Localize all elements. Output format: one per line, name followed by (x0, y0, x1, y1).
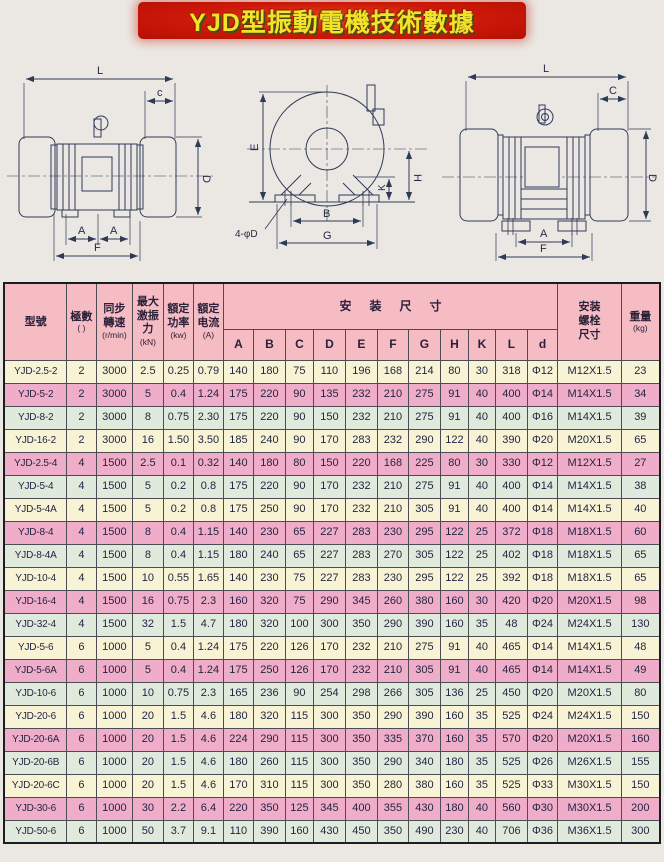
value-cell: 370 (408, 728, 440, 751)
value-cell: 6 (66, 705, 96, 728)
value-cell: 390 (253, 820, 285, 843)
value-cell: 250 (253, 659, 285, 682)
value-cell: 260 (377, 590, 408, 613)
value-cell: 180 (223, 544, 253, 567)
value-cell: 65 (622, 567, 660, 590)
value-cell: 2.2 (163, 797, 193, 820)
model-cell: YJD-5-4 (4, 475, 66, 498)
table-row: YJD-10-661000100.752.3165236902542982663… (4, 682, 659, 705)
table-body: YJD-2.5-2230002.50.250.79140180751101961… (4, 360, 659, 843)
value-cell: 210 (377, 498, 408, 521)
col-header-dim-d: d (527, 329, 557, 360)
value-cell: M14X1.5 (558, 383, 622, 406)
value-cell: 20 (132, 774, 163, 797)
value-cell: 30 (468, 590, 495, 613)
value-cell: 27 (622, 452, 660, 475)
value-cell: 40 (468, 820, 495, 843)
dim-label-E: E (249, 144, 261, 151)
value-cell: 91 (440, 383, 468, 406)
value-cell: M18X1.5 (558, 544, 622, 567)
value-cell: 5 (132, 659, 163, 682)
value-cell: 40 (468, 383, 495, 406)
table-row: YJD-20-6A61000201.54.6224290115300350335… (4, 728, 659, 751)
col-header-dim-D: D (313, 329, 345, 360)
dim-label-C: C (609, 85, 617, 97)
value-cell: 0.8 (193, 475, 223, 498)
value-cell: 220 (253, 383, 285, 406)
value-cell: 525 (495, 751, 527, 774)
col-header-model: 型號 (4, 283, 66, 360)
value-cell: 110 (313, 360, 345, 383)
value-cell: 135 (313, 383, 345, 406)
value-cell: 400 (345, 797, 377, 820)
value-cell: 10 (132, 567, 163, 590)
value-cell: 126 (285, 636, 313, 659)
value-cell: 100 (285, 613, 313, 636)
value-cell: 34 (622, 383, 660, 406)
value-cell: 80 (440, 452, 468, 475)
table-row: YJD-8-44150080.41.1514023065227283230295… (4, 521, 659, 544)
value-cell: 48 (622, 636, 660, 659)
value-cell: 254 (313, 682, 345, 705)
value-cell: 91 (440, 406, 468, 429)
value-cell: 4.7 (193, 613, 223, 636)
table-row: YJD-5-22300050.41.2417522090135232210275… (4, 383, 659, 406)
value-cell: 38 (622, 475, 660, 498)
value-cell: 25 (468, 544, 495, 567)
value-cell: 232 (345, 406, 377, 429)
value-cell: 140 (223, 360, 253, 383)
value-cell: 6 (66, 797, 96, 820)
value-cell: 210 (377, 659, 408, 682)
table-row: YJD-10-441500100.551.6514023075227283230… (4, 567, 659, 590)
dim-label-L: L (97, 65, 103, 77)
value-cell: 40 (468, 797, 495, 820)
value-cell: 115 (285, 774, 313, 797)
value-cell: M14X1.5 (558, 659, 622, 682)
value-cell: M24X1.5 (558, 705, 622, 728)
value-cell: 400 (495, 475, 527, 498)
value-cell: 4.6 (193, 705, 223, 728)
value-cell: 1000 (96, 682, 132, 705)
col-header-dim-A: A (223, 329, 253, 360)
col-header-speed: 同步轉速(r/min) (96, 283, 132, 360)
value-cell: Φ18 (527, 544, 557, 567)
dim-label-L: L (543, 63, 549, 75)
value-cell: 305 (408, 498, 440, 521)
value-cell: 160 (440, 728, 468, 751)
value-cell: 1000 (96, 705, 132, 728)
value-cell: 10 (132, 682, 163, 705)
spec-table: 型號 極數( ) 同步轉速(r/min) 最大激振力(kN) 額定功率(kw) … (3, 282, 660, 844)
value-cell: Φ16 (527, 406, 557, 429)
value-cell: 4 (66, 498, 96, 521)
value-cell: 170 (313, 659, 345, 682)
value-cell: 402 (495, 544, 527, 567)
value-cell: 230 (377, 567, 408, 590)
value-cell: 3000 (96, 429, 132, 452)
value-cell: 136 (440, 682, 468, 705)
value-cell: 465 (495, 636, 527, 659)
value-cell: 5 (132, 475, 163, 498)
value-cell: Φ12 (527, 360, 557, 383)
value-cell: 160 (622, 728, 660, 751)
value-cell: 1.24 (193, 636, 223, 659)
value-cell: 170 (313, 636, 345, 659)
value-cell: 266 (377, 682, 408, 705)
table-row: YJD-8-4A4150080.41.151802406522728327030… (4, 544, 659, 567)
table-row: YJD-30-661000302.26.42203501253454003554… (4, 797, 659, 820)
value-cell: 1.5 (163, 774, 193, 797)
value-cell: 170 (313, 475, 345, 498)
value-cell: 275 (408, 383, 440, 406)
dimension-diagrams: L c D A A F (0, 49, 664, 275)
value-cell: 30 (468, 452, 495, 475)
model-cell: YJD-32-4 (4, 613, 66, 636)
value-cell: 168 (377, 452, 408, 475)
value-cell: 300 (622, 820, 660, 843)
value-cell: 210 (377, 383, 408, 406)
value-cell: 420 (495, 590, 527, 613)
value-cell: Φ20 (527, 728, 557, 751)
value-cell: 110 (223, 820, 253, 843)
col-header-dim-G: G (408, 329, 440, 360)
value-cell: 232 (377, 429, 408, 452)
value-cell: 3.50 (193, 429, 223, 452)
model-cell: YJD-10-4 (4, 567, 66, 590)
value-cell: 283 (345, 544, 377, 567)
value-cell: 1000 (96, 797, 132, 820)
value-cell: 4 (66, 521, 96, 544)
value-cell: 180 (440, 751, 468, 774)
value-cell: 355 (377, 797, 408, 820)
value-cell: 65 (622, 429, 660, 452)
datasheet-page: YJD型振動電機技術數據 (0, 2, 664, 862)
value-cell: Φ20 (527, 682, 557, 705)
value-cell: 5 (132, 636, 163, 659)
value-cell: 5 (132, 383, 163, 406)
value-cell: Φ24 (527, 705, 557, 728)
value-cell: M14X1.5 (558, 498, 622, 521)
value-cell: M14X1.5 (558, 475, 622, 498)
value-cell: 1.5 (163, 751, 193, 774)
value-cell: 1.5 (163, 728, 193, 751)
model-cell: YJD-5-6 (4, 636, 66, 659)
value-cell: 1500 (96, 475, 132, 498)
value-cell: 2 (66, 383, 96, 406)
table-row: YJD-20-6C61000201.54.6170310115300350280… (4, 774, 659, 797)
col-header-dim-B: B (253, 329, 285, 360)
value-cell: M26X1.5 (558, 751, 622, 774)
value-cell: 0.55 (163, 567, 193, 590)
value-cell: 230 (253, 521, 285, 544)
value-cell: Φ14 (527, 498, 557, 521)
value-cell: 150 (622, 705, 660, 728)
value-cell: 6 (66, 682, 96, 705)
value-cell: 122 (440, 544, 468, 567)
value-cell: 4.6 (193, 751, 223, 774)
value-cell: 232 (345, 498, 377, 521)
value-cell: 175 (223, 383, 253, 406)
value-cell: 8 (132, 544, 163, 567)
value-cell: 345 (345, 590, 377, 613)
dim-label-A: A (540, 228, 548, 240)
value-cell: 0.75 (163, 406, 193, 429)
value-cell: 35 (468, 774, 495, 797)
model-cell: YJD-50-6 (4, 820, 66, 843)
value-cell: 300 (313, 613, 345, 636)
value-cell: 20 (132, 751, 163, 774)
value-cell: 400 (495, 498, 527, 521)
value-cell: 90 (285, 383, 313, 406)
value-cell: 1.5 (163, 705, 193, 728)
value-cell: 115 (285, 728, 313, 751)
value-cell: 350 (345, 728, 377, 751)
value-cell: 350 (377, 820, 408, 843)
dim-label-K: K (377, 184, 388, 191)
value-cell: 224 (223, 728, 253, 751)
value-cell: 3000 (96, 406, 132, 429)
value-cell: 2 (66, 429, 96, 452)
value-cell: 335 (377, 728, 408, 751)
model-cell: YJD-2.5-4 (4, 452, 66, 475)
table-row: YJD-20-6B61000201.54.6180260115300350290… (4, 751, 659, 774)
value-cell: 275 (408, 636, 440, 659)
value-cell: 155 (622, 751, 660, 774)
value-cell: 0.2 (163, 498, 193, 521)
col-header-force: 最大激振力(kN) (132, 283, 163, 360)
value-cell: Φ14 (527, 383, 557, 406)
value-cell: 48 (495, 613, 527, 636)
value-cell: 2.5 (132, 452, 163, 475)
value-cell: 4 (66, 590, 96, 613)
value-cell: 380 (408, 774, 440, 797)
value-cell: 318 (495, 360, 527, 383)
value-cell: 160 (223, 590, 253, 613)
value-cell: 170 (313, 429, 345, 452)
value-cell: 6 (66, 728, 96, 751)
model-cell: YJD-30-6 (4, 797, 66, 820)
value-cell: 392 (495, 567, 527, 590)
dim-label-D: D (646, 174, 658, 182)
value-cell: 525 (495, 705, 527, 728)
value-cell: 60 (622, 521, 660, 544)
value-cell: 0.4 (163, 521, 193, 544)
value-cell: 240 (253, 544, 285, 567)
value-cell: 175 (223, 406, 253, 429)
value-cell: 175 (223, 475, 253, 498)
value-cell: 305 (408, 682, 440, 705)
value-cell: 290 (253, 728, 285, 751)
value-cell: 40 (468, 429, 495, 452)
value-cell: 227 (313, 567, 345, 590)
model-cell: YJD-2.5-2 (4, 360, 66, 383)
value-cell: 300 (313, 774, 345, 797)
value-cell: 450 (345, 820, 377, 843)
value-cell: 20 (132, 705, 163, 728)
value-cell: 180 (440, 797, 468, 820)
value-cell: 0.8 (193, 498, 223, 521)
value-cell: 4 (66, 544, 96, 567)
col-header-power: 額定功率(kw) (163, 283, 193, 360)
value-cell: 115 (285, 751, 313, 774)
col-group-install-dimensions: 安装尺寸 (223, 283, 557, 329)
value-cell: 283 (345, 521, 377, 544)
value-cell: 390 (408, 613, 440, 636)
value-cell: 1500 (96, 544, 132, 567)
model-cell: YJD-16-4 (4, 590, 66, 613)
value-cell: 290 (408, 429, 440, 452)
value-cell: 210 (377, 475, 408, 498)
value-cell: 0.4 (163, 383, 193, 406)
value-cell: 525 (495, 774, 527, 797)
value-cell: 32 (132, 613, 163, 636)
value-cell: 4 (66, 613, 96, 636)
model-cell: YJD-8-4 (4, 521, 66, 544)
value-cell: 65 (622, 544, 660, 567)
value-cell: 1000 (96, 728, 132, 751)
value-cell: 430 (313, 820, 345, 843)
value-cell: 295 (408, 567, 440, 590)
value-cell: 232 (345, 636, 377, 659)
value-cell: Φ12 (527, 452, 557, 475)
col-header-dim-H: H (440, 329, 468, 360)
value-cell: 6 (66, 820, 96, 843)
value-cell: M14X1.5 (558, 406, 622, 429)
value-cell: 150 (313, 452, 345, 475)
value-cell: 91 (440, 659, 468, 682)
value-cell: 185 (223, 429, 253, 452)
value-cell: 1000 (96, 774, 132, 797)
model-cell: YJD-10-6 (4, 682, 66, 705)
value-cell: M18X1.5 (558, 567, 622, 590)
value-cell: M20X1.5 (558, 429, 622, 452)
value-cell: 210 (377, 636, 408, 659)
dim-label-H: H (411, 174, 423, 182)
table-row: YJD-8-22300080.752.301752209015023221027… (4, 406, 659, 429)
value-cell: 305 (408, 544, 440, 567)
value-cell: 25 (468, 521, 495, 544)
value-cell: 3.7 (163, 820, 193, 843)
value-cell: 227 (313, 544, 345, 567)
value-cell: 16 (132, 429, 163, 452)
value-cell: 490 (408, 820, 440, 843)
value-cell: 300 (313, 705, 345, 728)
value-cell: 345 (313, 797, 345, 820)
value-cell: 6 (66, 751, 96, 774)
value-cell: 40 (468, 475, 495, 498)
table-header: 型號 極數( ) 同步轉速(r/min) 最大激振力(kN) 額定功率(kw) … (4, 283, 659, 360)
value-cell: 2.30 (193, 406, 223, 429)
value-cell: 350 (345, 751, 377, 774)
value-cell: 2.3 (193, 590, 223, 613)
value-cell: 230 (253, 567, 285, 590)
value-cell: 90 (285, 429, 313, 452)
value-cell: 275 (408, 406, 440, 429)
value-cell: 0.75 (163, 682, 193, 705)
table-row: YJD-5-44150050.20.8175220901702322102759… (4, 475, 659, 498)
value-cell: 4.6 (193, 728, 223, 751)
value-cell: Φ20 (527, 590, 557, 613)
value-cell: 150 (313, 406, 345, 429)
value-cell: 220 (253, 475, 285, 498)
col-header-dim-K: K (468, 329, 495, 360)
value-cell: 560 (495, 797, 527, 820)
value-cell: Φ26 (527, 751, 557, 774)
value-cell: M20X1.5 (558, 590, 622, 613)
value-cell: 0.79 (193, 360, 223, 383)
value-cell: M20X1.5 (558, 682, 622, 705)
value-cell: 0.4 (163, 636, 193, 659)
value-cell: 4 (66, 567, 96, 590)
value-cell: 430 (408, 797, 440, 820)
value-cell: 23 (622, 360, 660, 383)
value-cell: 90 (285, 406, 313, 429)
value-cell: 126 (285, 659, 313, 682)
value-cell: 4.6 (193, 774, 223, 797)
value-cell: 1.5 (163, 613, 193, 636)
value-cell: 230 (377, 521, 408, 544)
value-cell: 0.1 (163, 452, 193, 475)
value-cell: 2 (66, 406, 96, 429)
value-cell: M30X1.5 (558, 797, 622, 820)
value-cell: Φ33 (527, 774, 557, 797)
value-cell: 0.2 (163, 475, 193, 498)
value-cell: 90 (285, 682, 313, 705)
value-cell: 372 (495, 521, 527, 544)
model-cell: YJD-20-6C (4, 774, 66, 797)
value-cell: 170 (223, 774, 253, 797)
value-cell: 298 (345, 682, 377, 705)
value-cell: 196 (345, 360, 377, 383)
table-row: YJD-20-661000201.54.61803201153003502903… (4, 705, 659, 728)
table-row: YJD-5-66100050.41.2417522012617023221027… (4, 636, 659, 659)
col-header-dim-L: L (495, 329, 527, 360)
value-cell: 20 (132, 728, 163, 751)
value-cell: 122 (440, 429, 468, 452)
model-cell: YJD-20-6B (4, 751, 66, 774)
value-cell: 1500 (96, 590, 132, 613)
model-cell: YJD-20-6 (4, 705, 66, 728)
value-cell: 80 (440, 360, 468, 383)
value-cell: 330 (495, 452, 527, 475)
value-cell: 6 (66, 774, 96, 797)
value-cell: 0.25 (163, 360, 193, 383)
value-cell: M12X1.5 (558, 452, 622, 475)
value-cell: 140 (223, 567, 253, 590)
value-cell: 9.1 (193, 820, 223, 843)
value-cell: 450 (495, 682, 527, 705)
value-cell: 168 (377, 360, 408, 383)
table-row: YJD-2.5-2230002.50.250.79140180751101961… (4, 360, 659, 383)
value-cell: 220 (253, 636, 285, 659)
dim-label-G: G (323, 230, 332, 242)
value-cell: 270 (377, 544, 408, 567)
value-cell: 165 (223, 682, 253, 705)
table-row: YJD-5-6A6100050.41.241752501261702322103… (4, 659, 659, 682)
value-cell: 6 (66, 659, 96, 682)
value-cell: 30 (468, 360, 495, 383)
value-cell: M30X1.5 (558, 774, 622, 797)
page-title: YJD型振動電機技術數據 (189, 3, 475, 39)
value-cell: 49 (622, 659, 660, 682)
table-row: YJD-32-441500321.54.71803201003003502903… (4, 613, 659, 636)
value-cell: 220 (223, 797, 253, 820)
value-cell: 175 (223, 498, 253, 521)
dim-label-F: F (540, 243, 547, 255)
value-cell: 290 (377, 751, 408, 774)
value-cell: 380 (408, 590, 440, 613)
